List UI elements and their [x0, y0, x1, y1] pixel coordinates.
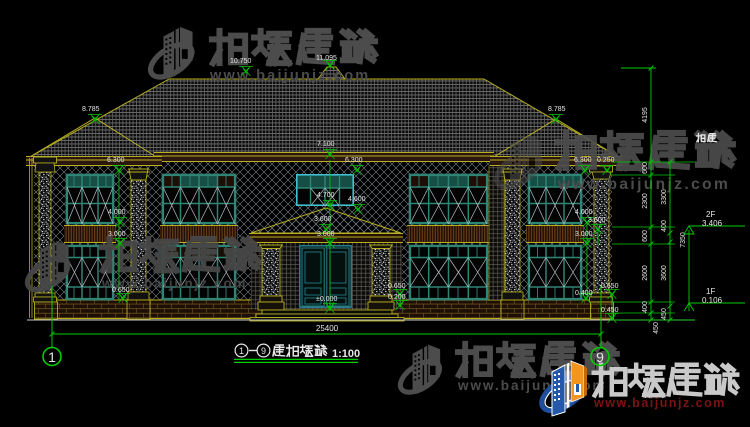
svg-text:1F: 1F [706, 287, 715, 296]
svg-text:0.400: 0.400 [575, 290, 593, 297]
svg-text:1: 1 [239, 346, 244, 356]
svg-text:3.600: 3.600 [314, 216, 332, 223]
svg-text:25400: 25400 [316, 324, 339, 333]
svg-text:www.baijunjz.com: www.baijunjz.com [593, 396, 726, 410]
svg-text:3.000: 3.000 [575, 231, 593, 238]
svg-text:www.baijunjz.com: www.baijunjz.com [209, 68, 370, 84]
svg-text:4.700: 4.700 [317, 192, 335, 199]
svg-text:6.300: 6.300 [574, 157, 592, 164]
svg-text:400: 400 [661, 220, 668, 232]
svg-text:600: 600 [642, 162, 649, 174]
svg-text:0.650: 0.650 [112, 287, 130, 294]
svg-text:10.750: 10.750 [230, 58, 252, 65]
svg-text:4195: 4195 [642, 107, 649, 123]
svg-text:0.200: 0.200 [388, 294, 406, 301]
svg-text:2F: 2F [706, 210, 715, 219]
svg-text:2600: 2600 [642, 265, 649, 281]
svg-text:0.250: 0.250 [597, 157, 615, 164]
svg-text:450: 450 [653, 322, 660, 334]
svg-text:4.600: 4.600 [348, 196, 366, 203]
svg-text:3.600: 3.600 [588, 217, 606, 224]
svg-text:1: 1 [48, 349, 56, 365]
svg-text:4.000: 4.000 [108, 209, 126, 216]
svg-text:6.300: 6.300 [107, 157, 125, 164]
svg-text:3.000: 3.000 [317, 231, 335, 238]
svg-text:450: 450 [661, 308, 668, 320]
svg-text:±0.000: ±0.000 [316, 296, 337, 303]
svg-text:3600: 3600 [661, 265, 668, 281]
svg-text:7350: 7350 [680, 232, 687, 248]
svg-text:3.406: 3.406 [702, 219, 723, 228]
svg-text:3300: 3300 [661, 189, 668, 205]
svg-text:7.100: 7.100 [317, 141, 335, 148]
svg-text:0.450: 0.450 [601, 307, 619, 314]
svg-text:1:100: 1:100 [332, 348, 360, 360]
svg-text:11.095: 11.095 [316, 55, 337, 62]
svg-text:2300: 2300 [642, 193, 649, 209]
svg-text:3.000: 3.000 [108, 231, 126, 238]
svg-text:9: 9 [261, 346, 266, 356]
svg-text:4.000: 4.000 [575, 209, 593, 216]
svg-text:6.300: 6.300 [345, 157, 363, 164]
svg-text:600: 600 [642, 230, 649, 242]
svg-text:www.baijunjz.com: www.baijunjz.com [557, 176, 730, 193]
svg-text:9: 9 [596, 349, 604, 365]
svg-text:0.650: 0.650 [601, 283, 619, 290]
svg-text:0.106: 0.106 [702, 296, 723, 305]
svg-text:0.650: 0.650 [388, 283, 406, 290]
svg-text:8.785: 8.785 [548, 106, 566, 113]
svg-text:400: 400 [642, 301, 649, 313]
svg-text:8.785: 8.785 [82, 106, 100, 113]
